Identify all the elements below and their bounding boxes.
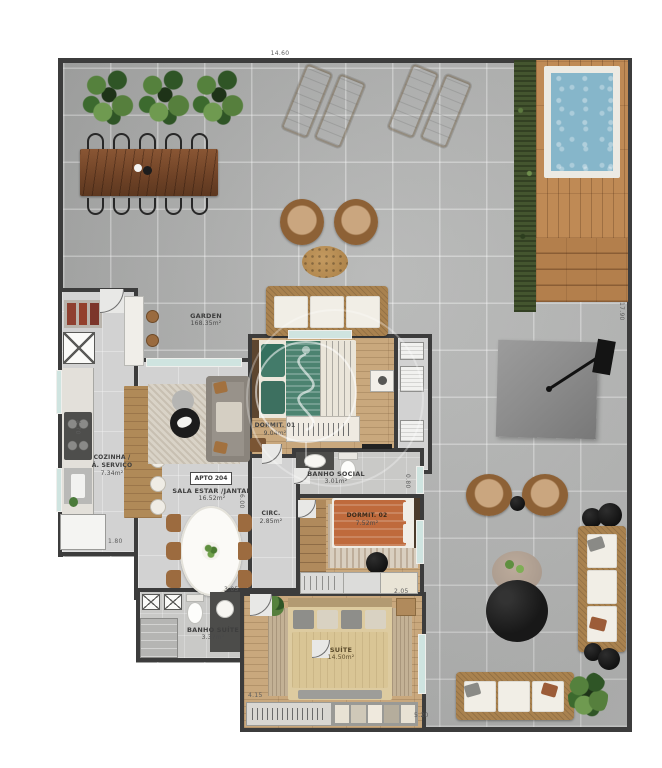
suite-closet-hangers [246,702,332,726]
label-suite: SUÍTE 14.50m² [310,646,372,662]
window-kitchen [56,370,62,414]
window-bedroom1 [288,330,352,339]
living-sofa [206,376,250,462]
room-name: Á. SERVIÇO [92,462,133,469]
bar-stool [146,334,159,347]
dim-top: 14.60 [258,50,302,57]
planter-bush [138,66,190,130]
door-bedroom2 [298,500,316,518]
succulent [516,565,524,573]
room-area: 7.52m² [340,520,394,528]
dim-suite-left: 4.15 [248,692,263,699]
deck-steps [536,238,628,302]
label-banho-social: BANHO SOCIAL 3.01m² [300,470,372,486]
papasan-chair [334,199,378,245]
hedge-strip [514,60,536,312]
dining-chair [165,133,182,150]
room-area: 3.01m² [300,478,372,486]
room-hallway [248,454,300,602]
dim-suite-bottom: 5.20 [414,712,429,719]
laundry-box [142,594,160,610]
unit-badge: APTO 204 [190,472,232,485]
table-lamp [378,376,387,385]
desk-chair [366,552,388,574]
towel-bar [362,444,392,449]
label-garden: GARDEN 168.35m² [172,312,240,328]
door-bedroom1 [262,444,282,464]
washbasin [304,454,326,468]
label-dormit1: DORMIT. 01 9.04m² [252,422,298,438]
papasan-chair [280,199,324,245]
dim-kitchen-height: 4.70 [74,420,81,435]
toilet-tank [338,452,358,460]
dining-chair-wood [166,542,181,560]
bar-stool [146,310,159,323]
plan-cutout-bottom [136,663,242,768]
island-stool [150,476,166,492]
ac-unit [400,366,424,392]
dim-banho-window: 0.80 [404,474,411,489]
entry-door [100,289,124,313]
room-name: COZINHA / [94,454,131,461]
dining-chair [139,133,156,150]
bar-counter-top [124,296,144,366]
room-area: 7.34m² [88,470,136,478]
label-dormit2: DORMIT. 02 7.52m² [340,512,394,528]
toilet-tank [186,594,204,602]
room-name: BANHO SOCIAL [307,470,365,478]
window-suite [418,634,426,694]
window-living [146,358,242,367]
label-cozinha: COZINHA / Á. SERVIÇO 7.34m² [88,454,136,477]
laundry-box [164,594,182,610]
dim-kitchen-width: 1.80 [108,538,123,545]
window-bedroom2 [416,520,424,564]
ac-unit [400,420,424,442]
side-table [598,648,620,670]
dim-suite-top: 3.05 [224,586,239,593]
dining-chair-wood [238,570,252,588]
papasan-chair [466,474,512,516]
room-name: SUÍTE [330,646,352,654]
succulent [505,560,514,569]
bed-dormit1 [252,340,356,418]
shaft [63,332,95,364]
pool-water [551,73,613,171]
room-name: DORMIT. 02 [347,512,388,519]
label-circ: CIRC. 2.85m² [250,510,292,526]
room-area: 2.85m² [250,518,292,526]
toilet [187,602,203,624]
label-banho-suite: BANHO SUÍTE 3.37m² [182,626,244,642]
terrace-sofa-bottom [456,672,574,720]
dining-chair [113,133,130,150]
pantry-shelf [64,300,102,328]
window-kitchen [56,468,62,512]
coffee-table-black [486,580,548,642]
side-table [598,503,622,527]
dining-chair [87,133,104,150]
dining-chair [165,198,182,215]
room-area: 3.37m² [182,634,244,642]
table-decor [143,166,152,175]
planter-bush [82,66,134,130]
island-stool [150,499,166,515]
door-suite [250,594,272,616]
room-name: BANHO SUÍTE [187,626,239,634]
dim-sala-height: 6.00 [238,494,245,509]
rattan-ottoman [302,246,348,278]
round-sink [216,600,234,618]
dining-chair [113,198,130,215]
room-name: DORMIT. 01 [255,422,296,429]
floor-plan: GARDEN 168.35m² COZINHA / Á. SERVIÇO 7.3… [0,0,662,768]
dining-chair-wood [166,570,181,588]
table-decor [134,164,142,172]
laundry-tank [60,514,106,550]
room-area: 168.35m² [172,320,240,328]
dining-chair-wood [238,542,252,560]
room-area: 9.04m² [252,430,298,438]
terrace-sofa-right [578,526,626,652]
garden-sofa [266,286,388,336]
table-centerpiece [202,542,220,560]
room-name: GARDEN [190,312,222,320]
shower [140,618,178,658]
dining-chair-wood [166,514,181,532]
suite-closet-shelves [332,702,418,726]
papasan-chair [522,474,568,516]
plan-cutout-left [50,557,136,768]
room-name: CIRC. [262,510,281,517]
side-table [510,496,525,511]
room-area: 14.50m² [310,654,372,662]
dining-chair [139,198,156,215]
potted-plant [568,672,608,718]
counter-plant [69,497,78,507]
dining-chair [191,133,208,150]
nightstand [396,598,416,616]
dining-chair [191,198,208,215]
ac-unit [400,342,424,360]
dim-right: 17.90 [618,302,625,321]
dining-chair [87,198,104,215]
planter-bush [192,66,244,130]
window-bath-social [416,466,424,494]
dim-dormit2-corner: 2.05 [394,588,409,595]
